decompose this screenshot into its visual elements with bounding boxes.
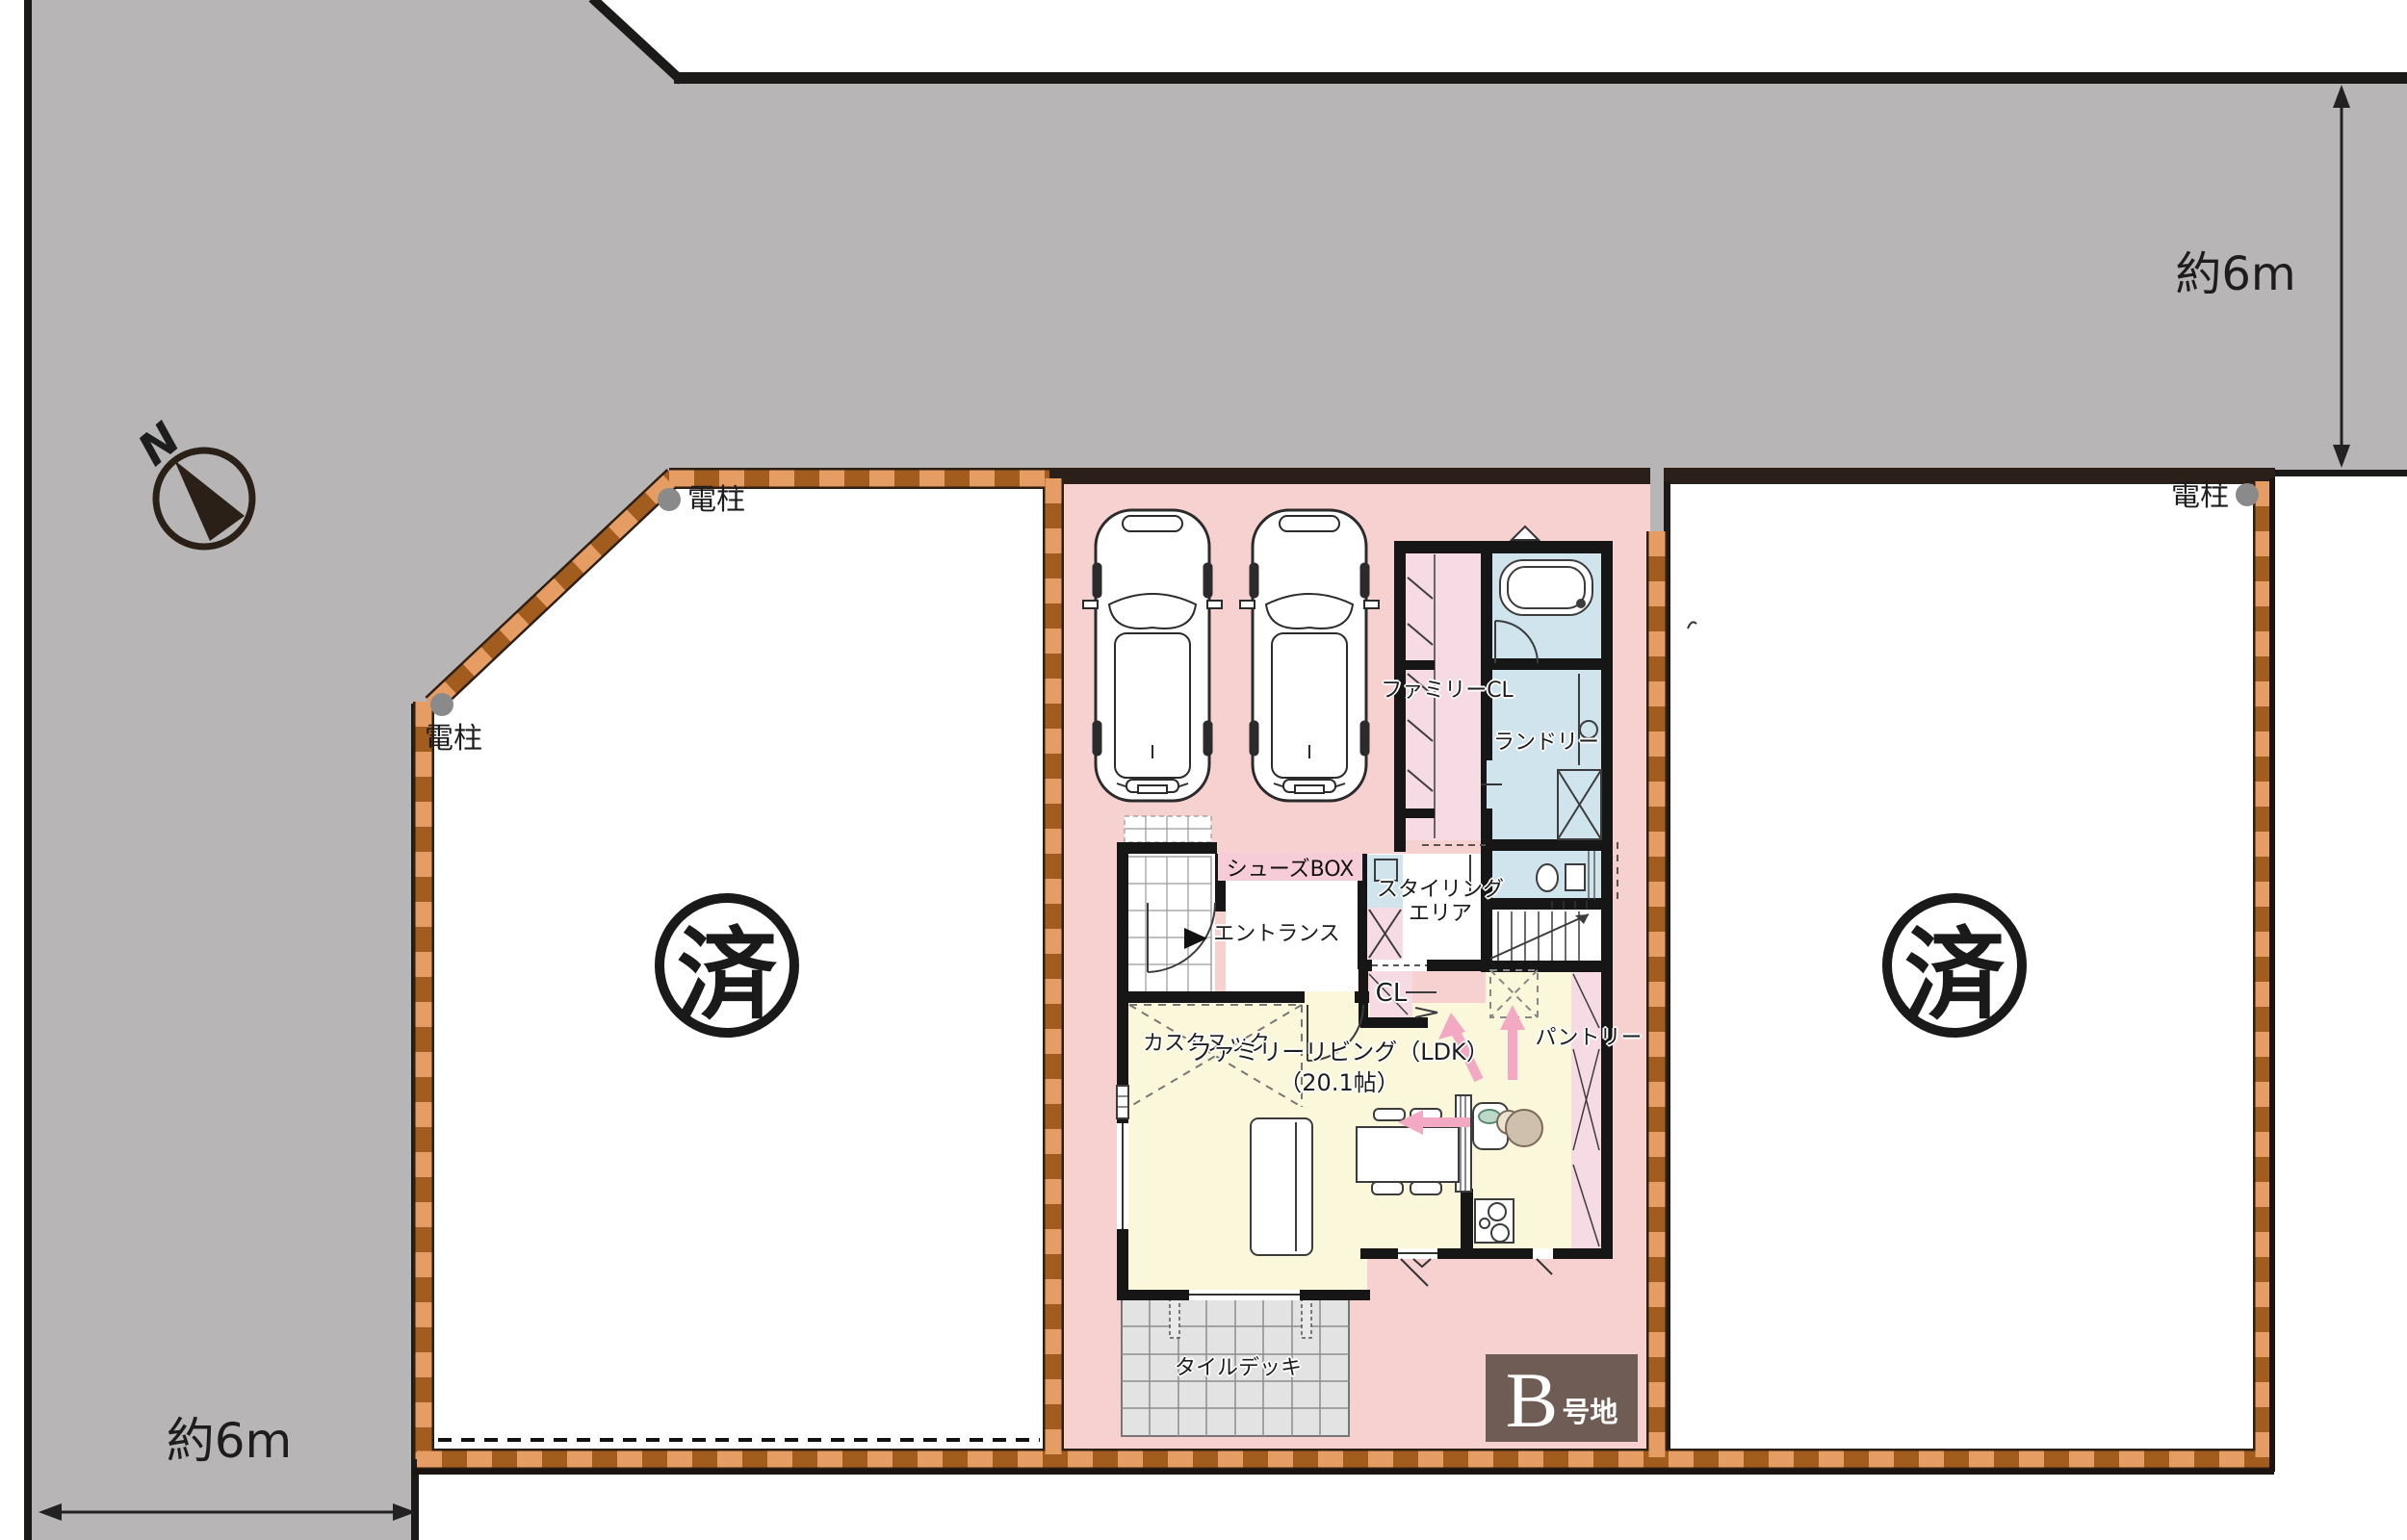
room-label-entrance: エントランス: [1213, 923, 1340, 946]
road-notch: [1650, 468, 1664, 531]
lot-b-badge: B 号地: [1486, 1354, 1638, 1442]
utility-pole-icon: [430, 693, 453, 716]
utility-pole-label-1: 電柱: [687, 484, 745, 516]
room-label-family-living-size: （20.1帖）: [1279, 1070, 1399, 1095]
utility-pole-label-3: 電柱: [2171, 480, 2229, 512]
lot-b-badge-suffix: 号地: [1562, 1390, 1618, 1430]
room-label-laundry: ランドリー: [1493, 731, 1599, 755]
car-2: [1240, 510, 1379, 801]
utility-pole-icon: [658, 488, 681, 511]
room-label-pantry: パントリー: [1535, 1027, 1642, 1050]
room-label-styling-line1: スタイリング: [1377, 879, 1504, 902]
room-label-styling-line2: エリア: [1409, 903, 1472, 926]
road-width-label-right: 約6m: [2175, 249, 2295, 300]
car-1: [1083, 510, 1222, 801]
site-plan: N 約6m 約6m 電柱 電柱 電柱 済 済 ファミリーCL ランドリー シュー…: [0, 0, 2407, 1540]
room-label-shoes-box-text: シューズBOX: [1227, 852, 1355, 883]
utility-pole-icon: [2236, 483, 2259, 506]
pantry-cabinet: [1571, 972, 1601, 1251]
road-width-label-left: 約6m: [167, 1415, 293, 1468]
room-label-family-living: ファミリーリビング（LDK）: [1189, 1039, 1489, 1065]
room-label-shoes-box: シューズBOX: [1218, 853, 1362, 881]
utility-pole-label-2: 電柱: [425, 723, 482, 755]
sold-stamp-right: 済: [1882, 893, 2027, 1038]
room-label-closet: CL: [1376, 980, 1408, 1008]
room-label-family-closet: ファミリーCL: [1381, 680, 1514, 703]
site-plan-canvas: [0, 0, 2407, 1540]
sold-stamp-left: 済: [655, 893, 799, 1038]
lot-b-badge-letter: B: [1506, 1365, 1559, 1436]
toilet-bowl: [1537, 864, 1558, 891]
room-label-tile-deck: タイルデッキ: [1175, 1357, 1302, 1380]
